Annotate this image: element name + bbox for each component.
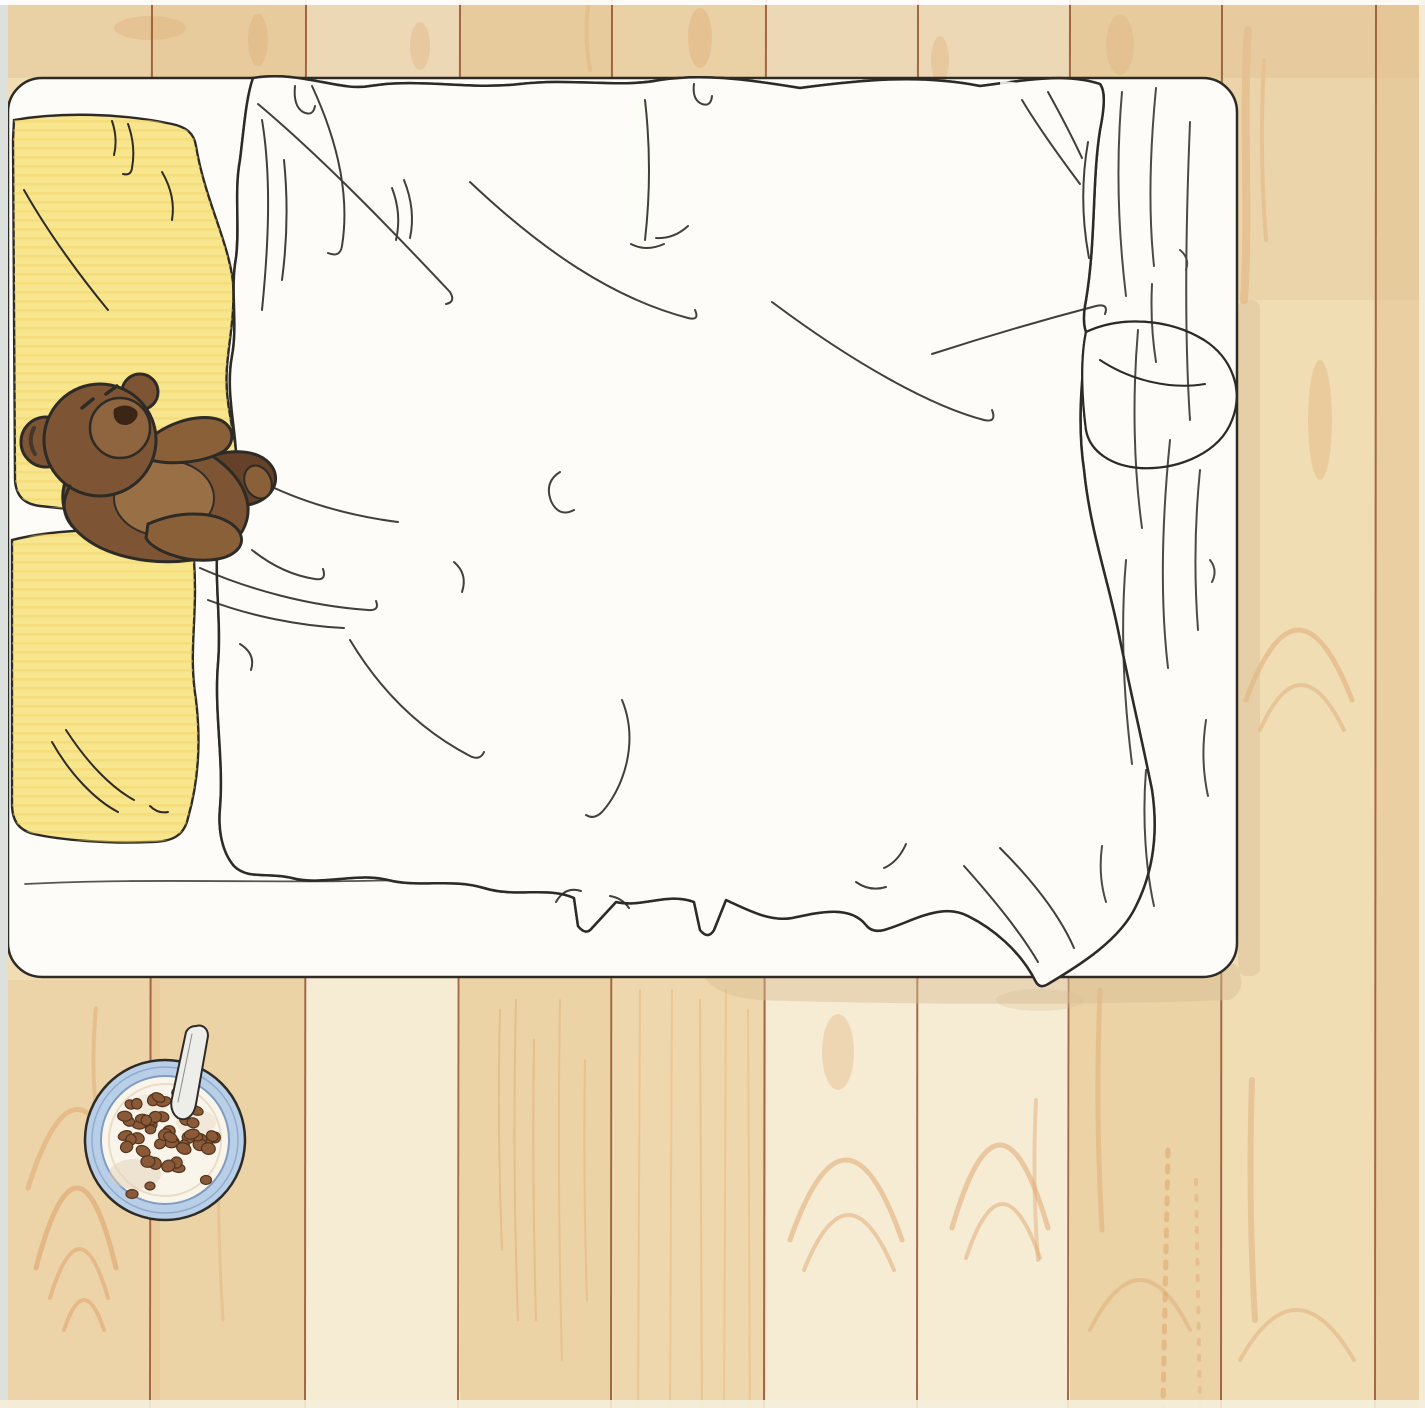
scan-edge-left xyxy=(0,0,8,1408)
illustration-canvas xyxy=(0,0,1425,1408)
duvet xyxy=(200,76,1237,986)
scan-edge-bottom xyxy=(0,1400,1425,1408)
scan-edge-right xyxy=(1419,0,1425,1408)
pillow-bottom xyxy=(12,530,198,842)
cereal-piece xyxy=(145,1125,156,1134)
cereal-piece xyxy=(118,1111,133,1121)
scan-edge-top xyxy=(0,0,1425,5)
bed-shadow-right xyxy=(1238,300,1260,976)
duvet-tip-shadow xyxy=(996,989,1084,1011)
scene xyxy=(0,0,1425,1408)
